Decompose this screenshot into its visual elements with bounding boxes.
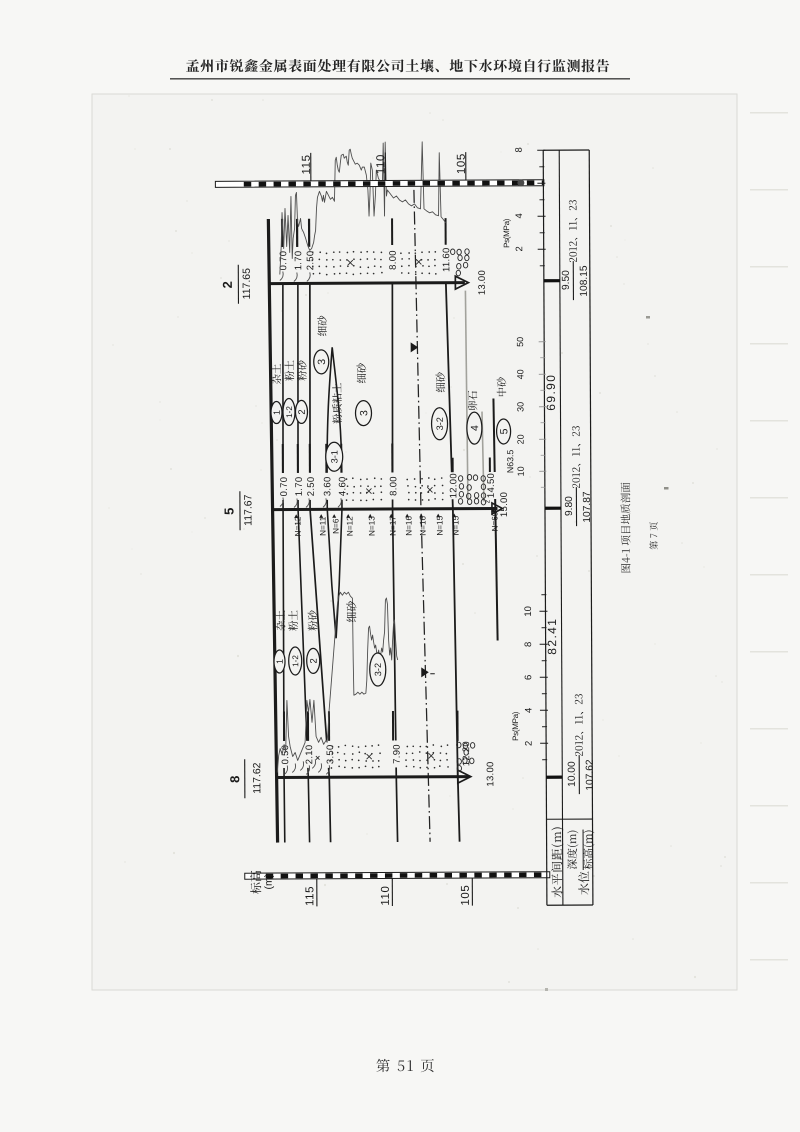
svg-text:3.60: 3.60	[322, 476, 333, 496]
svg-text:2: 2	[220, 281, 235, 288]
svg-text:Ps(MPa): Ps(MPa)	[511, 711, 520, 741]
svg-text:1.70: 1.70	[294, 477, 305, 497]
svg-text:110: 110	[375, 154, 387, 174]
svg-text:2.10: 2.10	[304, 745, 315, 765]
svg-text:9.50: 9.50	[561, 270, 572, 290]
svg-text:1: 1	[275, 659, 285, 664]
svg-text:3: 3	[316, 359, 328, 365]
svg-text:117.65: 117.65	[241, 268, 253, 300]
svg-text:N=11: N=11	[319, 516, 328, 536]
svg-text:2: 2	[297, 409, 308, 414]
svg-text:4: 4	[523, 708, 534, 713]
svg-text:N=6: N=6	[332, 518, 341, 534]
svg-text:13.00: 13.00	[477, 270, 488, 295]
svg-text:10: 10	[516, 466, 526, 476]
svg-text:N=17: N=17	[389, 516, 398, 536]
svg-text:13.00: 13.00	[485, 761, 496, 786]
svg-text:Ps(MPa): Ps(MPa)	[502, 218, 511, 248]
svg-text:117.62: 117.62	[251, 762, 263, 794]
svg-text:10.00: 10.00	[567, 761, 578, 787]
svg-text:3: 3	[358, 410, 370, 416]
svg-text:N=69: N=69	[490, 511, 499, 531]
svg-text:6: 6	[523, 675, 534, 680]
svg-text:117.67: 117.67	[242, 494, 254, 526]
svg-text:7.90: 7.90	[392, 744, 403, 764]
svg-text:N=16: N=16	[405, 516, 414, 536]
svg-text:15.00: 15.00	[499, 492, 510, 517]
svg-text:N=13: N=13	[368, 516, 377, 536]
svg-text:105: 105	[456, 153, 468, 174]
svg-text:1-2: 1-2	[291, 655, 300, 667]
svg-text:3-2: 3-2	[435, 417, 445, 430]
svg-text:12.00: 12.00	[448, 473, 459, 498]
svg-text:0.70: 0.70	[279, 477, 290, 497]
svg-text:115: 115	[301, 154, 313, 174]
svg-text:4: 4	[514, 213, 525, 218]
svg-text:108.15: 108.15	[579, 265, 590, 297]
svg-text:14.50: 14.50	[486, 473, 497, 498]
svg-text:105: 105	[460, 885, 472, 906]
svg-text:115: 115	[304, 886, 316, 906]
svg-text:1.70: 1.70	[293, 251, 304, 271]
svg-text:69.90: 69.90	[544, 374, 558, 411]
svg-text:N63.5: N63.5	[505, 450, 515, 474]
svg-text:1-2: 1-2	[285, 406, 294, 418]
svg-text:107.87: 107.87	[582, 491, 593, 523]
svg-text:8.00: 8.00	[388, 250, 399, 270]
svg-text:3-1: 3-1	[329, 450, 339, 463]
svg-text:N=12: N=12	[346, 516, 355, 536]
svg-text:4: 4	[469, 425, 481, 431]
svg-text:8: 8	[227, 776, 242, 783]
svg-text:20: 20	[516, 434, 526, 444]
svg-text:50: 50	[515, 337, 525, 347]
svg-text:30: 30	[515, 402, 525, 412]
svg-text:8: 8	[523, 642, 534, 647]
svg-text:2.50: 2.50	[305, 251, 316, 271]
svg-text:2: 2	[514, 246, 525, 251]
svg-text:3-2: 3-2	[373, 663, 383, 676]
svg-text:8.00: 8.00	[388, 476, 399, 496]
svg-text:N=15: N=15	[452, 515, 461, 535]
svg-text:8: 8	[514, 147, 525, 152]
svg-text:5: 5	[498, 428, 510, 434]
svg-text:2.50: 2.50	[306, 477, 317, 497]
svg-text:N=12: N=12	[294, 516, 303, 536]
svg-text:N=15: N=15	[436, 515, 445, 535]
svg-text:1: 1	[272, 410, 282, 415]
svg-text:5: 5	[221, 508, 236, 515]
svg-text:(m): (m)	[263, 874, 275, 890]
svg-text:10: 10	[523, 606, 534, 617]
svg-text:N=16: N=16	[419, 515, 428, 535]
svg-text:9.80: 9.80	[564, 496, 575, 516]
svg-text:110: 110	[380, 885, 392, 905]
svg-text:107.62: 107.62	[585, 759, 596, 791]
svg-text:40: 40	[515, 369, 525, 379]
svg-text:2: 2	[524, 741, 535, 746]
svg-text:82.41: 82.41	[545, 618, 559, 655]
svg-text:2: 2	[309, 658, 320, 663]
